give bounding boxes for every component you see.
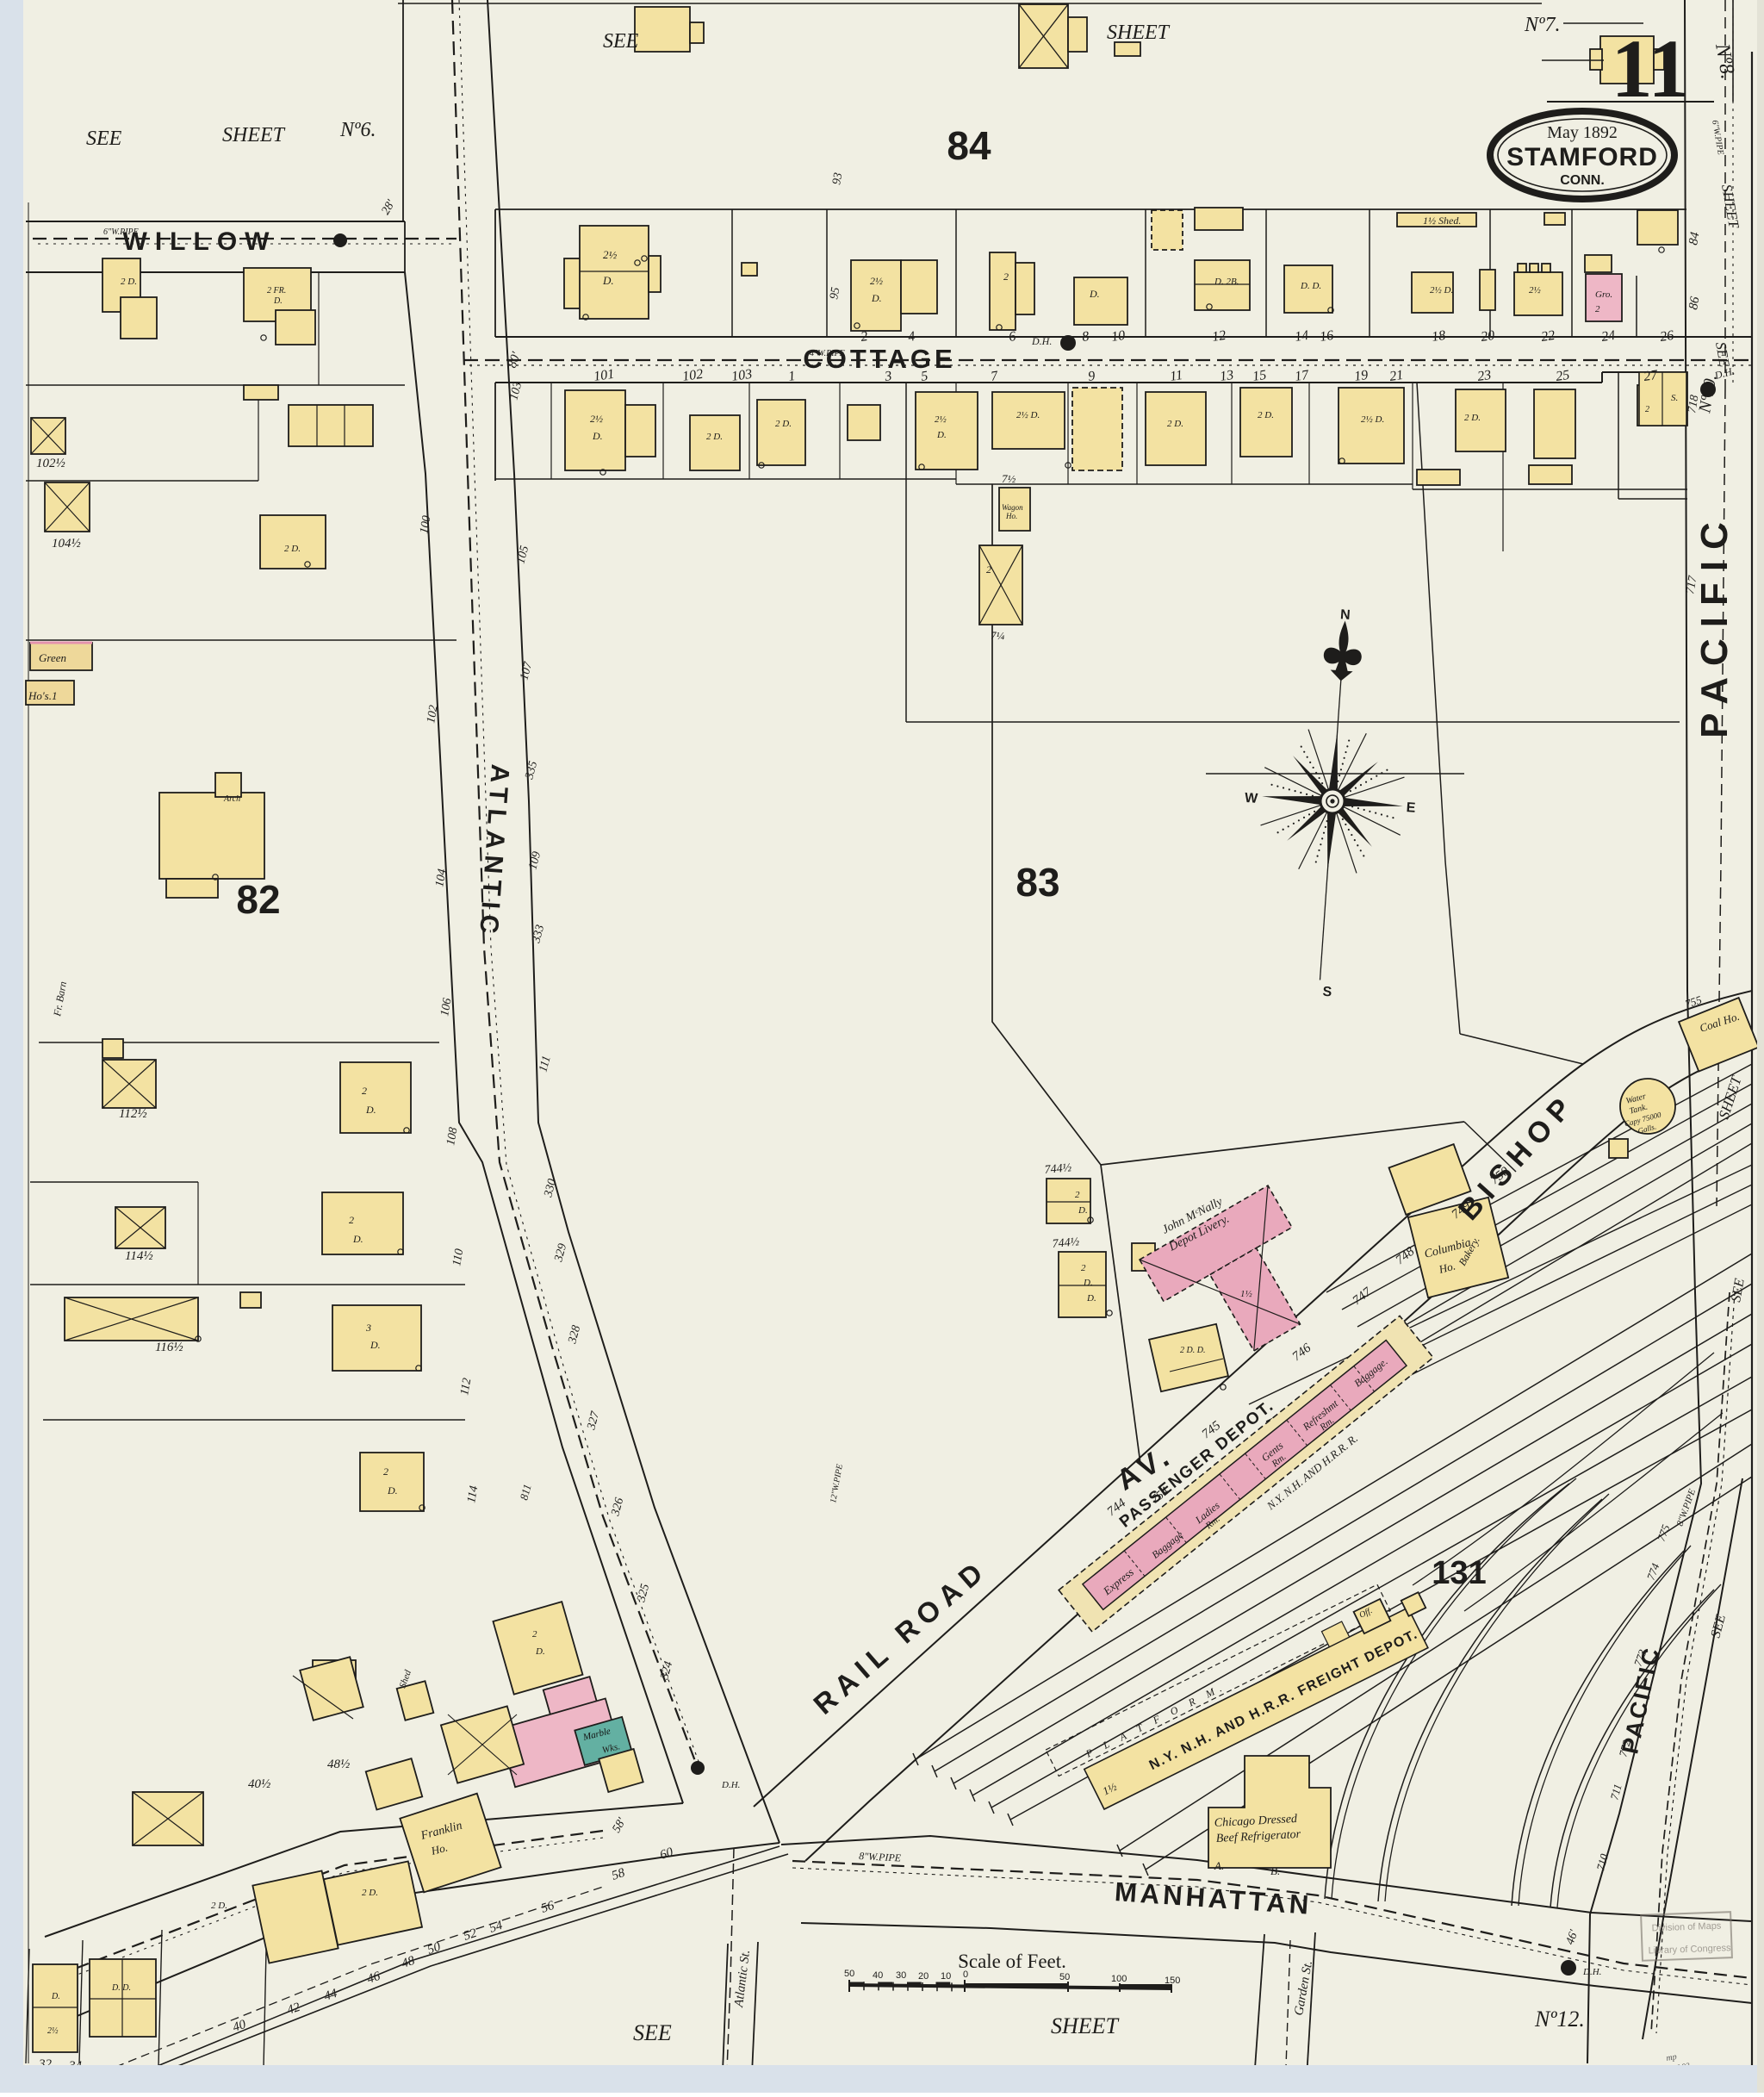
svg-text:Wagon: Wagon [1002, 503, 1023, 512]
svg-text:2: 2 [349, 1214, 354, 1226]
svg-text:10: 10 [941, 1971, 951, 1982]
svg-text:2: 2 [1075, 1190, 1080, 1200]
svg-text:2 D.: 2 D. [1464, 413, 1481, 423]
svg-text:12: 12 [1211, 328, 1227, 345]
svg-text:PACIFIC: PACIFIC [1693, 511, 1736, 738]
svg-text:15: 15 [1252, 368, 1267, 384]
svg-text:Ho's.1: Ho's.1 [28, 689, 57, 702]
svg-text:25: 25 [1555, 368, 1570, 384]
svg-text:2 D.: 2 D. [706, 432, 723, 442]
svg-text:50: 50 [844, 1969, 854, 1979]
svg-text:2½ D.: 2½ D. [1361, 414, 1384, 425]
svg-text:13: 13 [1219, 368, 1234, 384]
svg-text:D. D.: D. D. [1300, 281, 1321, 291]
svg-text:D. D.: D. D. [111, 1983, 131, 1993]
svg-text:Scale of Feet.: Scale of Feet. [958, 1951, 1066, 1972]
svg-text:B.: B. [1270, 1864, 1280, 1877]
svg-text:SEE: SEE [603, 30, 639, 53]
svg-text:2 D.: 2 D. [1258, 410, 1274, 420]
svg-text:SHEET: SHEET [1051, 2013, 1120, 2038]
svg-text:D.: D. [936, 430, 947, 440]
svg-text:D.: D. [365, 1104, 376, 1116]
svg-text:10: 10 [1110, 328, 1126, 345]
svg-text:7¼: 7¼ [991, 629, 1005, 642]
svg-text:2½: 2½ [47, 2026, 59, 2036]
svg-text:2 D.: 2 D. [121, 277, 137, 287]
svg-text:48½: 48½ [327, 1758, 350, 1771]
svg-text:2 D.: 2 D. [362, 1888, 378, 1898]
svg-text:2: 2 [1081, 1263, 1086, 1273]
svg-text:101: 101 [593, 367, 615, 384]
svg-text:2: 2 [1003, 271, 1009, 283]
svg-text:2 D. D.: 2 D. D. [1180, 1346, 1205, 1355]
svg-text:SHEET: SHEET [222, 124, 286, 146]
svg-text:0: 0 [963, 1969, 968, 1980]
svg-text:93: 93 [830, 171, 845, 185]
svg-text:102: 102 [681, 367, 704, 384]
svg-text:40: 40 [873, 1970, 883, 1981]
svg-text:S: S [1322, 985, 1332, 1000]
svg-text:14: 14 [1294, 328, 1309, 345]
svg-text:744½: 744½ [1052, 1235, 1080, 1251]
svg-text:26: 26 [1659, 328, 1674, 345]
svg-text:2 D.: 2 D. [211, 1901, 227, 1911]
svg-text:D.: D. [1089, 288, 1100, 300]
svg-text:D.H.: D.H. [1582, 1967, 1601, 1977]
svg-text:Nº12.: Nº12. [1534, 2007, 1585, 2032]
svg-text:30: 30 [896, 1970, 906, 1981]
svg-text:23: 23 [1476, 368, 1492, 384]
svg-text:2½: 2½ [1529, 285, 1541, 296]
svg-text:2½: 2½ [603, 248, 618, 261]
svg-text:SEE: SEE [633, 2020, 672, 2045]
svg-text:STAMFORD: STAMFORD [1506, 143, 1658, 171]
svg-text:1½: 1½ [1240, 1289, 1252, 1299]
svg-text:2: 2 [986, 563, 991, 576]
svg-text:2½: 2½ [590, 413, 603, 425]
svg-text:D.: D. [592, 430, 603, 442]
svg-text:Arch: Arch [223, 794, 240, 804]
svg-text:Nº7.: Nº7. [1524, 14, 1560, 36]
svg-text:112½: 112½ [119, 1107, 147, 1121]
svg-text:D.: D. [602, 274, 614, 287]
svg-text:20: 20 [1480, 328, 1495, 345]
svg-text:95: 95 [828, 286, 842, 300]
svg-text:3: 3 [365, 1322, 371, 1334]
svg-text:22: 22 [1540, 328, 1556, 345]
svg-text:SEE: SEE [86, 128, 122, 150]
svg-text:CONN.: CONN. [1560, 173, 1605, 188]
svg-text:D.H.: D.H. [1031, 335, 1052, 347]
svg-text:2½ D.: 2½ D. [1430, 285, 1453, 296]
svg-text:2: 2 [383, 1465, 388, 1478]
svg-text:24: 24 [1600, 328, 1616, 345]
svg-text:1½ Shed.: 1½ Shed. [1423, 215, 1461, 227]
svg-text:2 D.: 2 D. [284, 544, 301, 554]
svg-text:mp: mp [1666, 2052, 1678, 2063]
svg-text:4"W.PIPE: 4"W.PIPE [810, 349, 845, 358]
svg-text:D. 2B.: D. 2B. [1214, 277, 1239, 287]
svg-text:103: 103 [730, 367, 753, 384]
svg-text:A.: A. [1214, 1859, 1224, 1872]
svg-text:114½: 114½ [125, 1249, 153, 1263]
svg-text:D.: D. [871, 292, 882, 304]
svg-text:100: 100 [1111, 1974, 1127, 1984]
svg-text:19: 19 [1353, 368, 1369, 384]
svg-text:D.: D. [370, 1339, 381, 1351]
svg-text:18: 18 [1431, 328, 1446, 345]
svg-text:W: W [1244, 791, 1258, 806]
svg-text:2 D.: 2 D. [1167, 419, 1183, 429]
svg-text:40½: 40½ [248, 1777, 270, 1791]
svg-text:8"W.PIPE: 8"W.PIPE [859, 1850, 902, 1864]
svg-text:150: 150 [1165, 1976, 1180, 1986]
svg-text:N: N [1340, 607, 1351, 623]
svg-text:131: 131 [1432, 1555, 1486, 1591]
svg-text:21: 21 [1388, 368, 1404, 384]
svg-text:2½: 2½ [935, 414, 947, 425]
svg-text:2: 2 [532, 1629, 537, 1640]
svg-text:2 FR.: 2 FR. [267, 286, 286, 296]
svg-text:2: 2 [1645, 405, 1649, 414]
svg-text:83: 83 [1016, 860, 1059, 905]
svg-text:16: 16 [1319, 328, 1334, 345]
svg-text:Nº6.: Nº6. [339, 119, 376, 141]
svg-text:104½: 104½ [52, 537, 81, 551]
svg-text:Gro.: Gro. [1595, 289, 1612, 300]
svg-text:D.: D. [1083, 1278, 1093, 1288]
svg-text:Green: Green [39, 651, 66, 664]
svg-text:2 D.: 2 D. [775, 419, 792, 429]
svg-text:SHEET: SHEET [1107, 22, 1171, 44]
svg-text:D.: D. [51, 1992, 60, 2001]
svg-text:2½ D.: 2½ D. [1016, 410, 1040, 420]
svg-text:D.H.: D.H. [721, 1780, 740, 1790]
svg-text:744½: 744½ [1044, 1161, 1072, 1177]
svg-text:102½: 102½ [36, 457, 65, 470]
svg-text:2: 2 [362, 1085, 367, 1097]
svg-text:S.: S. [1671, 393, 1678, 403]
svg-text:82: 82 [236, 877, 280, 922]
svg-text:2½: 2½ [870, 275, 883, 287]
svg-text:D.: D. [387, 1484, 398, 1497]
svg-text:E: E [1406, 800, 1416, 816]
svg-text:D.: D. [535, 1646, 545, 1657]
svg-text:50: 50 [1059, 1972, 1070, 1982]
svg-text:11: 11 [1169, 368, 1183, 384]
svg-text:May 1892: May 1892 [1547, 123, 1618, 142]
svg-text:6"W.PIPE: 6"W.PIPE [103, 227, 139, 237]
svg-text:D.: D. [352, 1233, 363, 1245]
svg-text:11: 11 [1612, 22, 1690, 115]
svg-text:Ho.: Ho. [1005, 512, 1017, 520]
svg-text:D.: D. [273, 296, 283, 306]
svg-text:WILLOW: WILLOW [123, 227, 277, 256]
svg-text:D.: D. [1078, 1205, 1088, 1216]
svg-text:2: 2 [1595, 304, 1600, 314]
svg-text:7½: 7½ [1002, 472, 1016, 485]
svg-text:84: 84 [947, 123, 991, 168]
svg-text:D.: D. [1086, 1293, 1096, 1304]
svg-text:116½: 116½ [155, 1341, 183, 1354]
svg-text:20: 20 [918, 1971, 929, 1982]
